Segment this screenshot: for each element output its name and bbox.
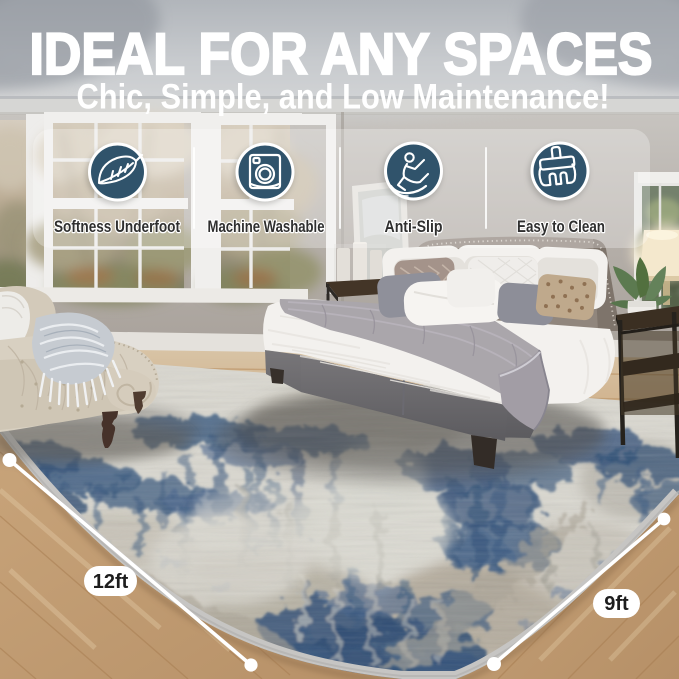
svg-text:Softness Underfoot: Softness Underfoot (54, 218, 180, 236)
svg-text:12ft: 12ft (93, 571, 129, 593)
svg-text:Easy to Clean: Easy to Clean (517, 218, 605, 236)
svg-text:9ft: 9ft (604, 593, 629, 615)
svg-text:Chic, Simple, and Low Maintena: Chic, Simple, and Low Maintenance! (77, 78, 610, 117)
svg-text:Machine Washable: Machine Washable (208, 218, 325, 236)
svg-text:Anti-Slip: Anti-Slip (385, 218, 443, 236)
